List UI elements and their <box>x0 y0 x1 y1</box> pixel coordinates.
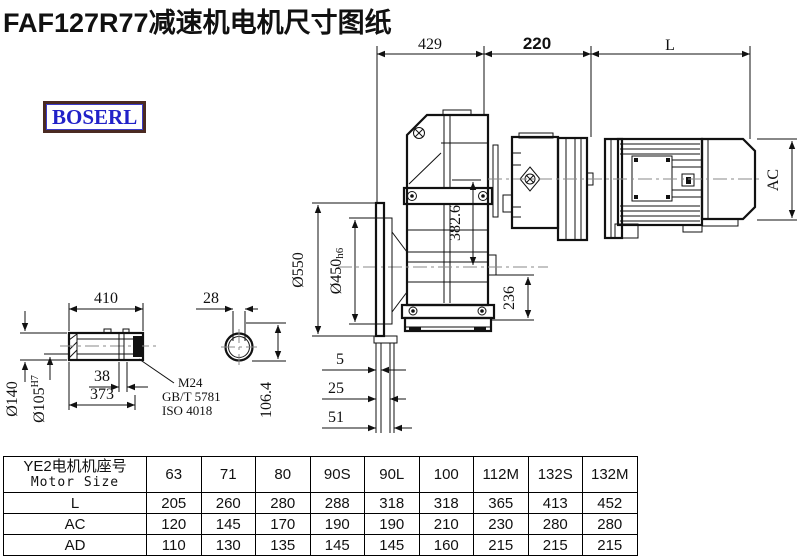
cell: 413 <box>528 493 583 514</box>
motor-size-label-en: Motor Size <box>4 475 146 491</box>
cell: 365 <box>474 493 529 514</box>
housing-dimensions: 382.6 236 <box>447 180 534 320</box>
col-header: 112M <box>474 457 529 493</box>
dim-38: 38 <box>94 368 110 385</box>
cell: 230 <box>474 514 529 535</box>
cell: 215 <box>583 535 638 556</box>
motor-adapter <box>493 133 593 240</box>
dim-51: 51 <box>328 409 344 426</box>
label-standard-iso: ISO 4018 <box>162 403 212 418</box>
dim-5: 5 <box>336 351 344 368</box>
motor <box>488 139 762 238</box>
label-standard-gb: GB/T 5781 <box>162 389 221 404</box>
col-header: 71 <box>201 457 256 493</box>
row-label: AC <box>4 514 147 535</box>
cell: 318 <box>365 493 420 514</box>
table-row-AD: AD 110 130 135 145 145 160 215 215 215 <box>4 535 638 556</box>
dim-28: 28 <box>203 290 219 307</box>
table-header-row: YE2电机机座号 Motor Size 63 71 80 90S 90L 100… <box>4 457 638 493</box>
cell: 145 <box>310 535 365 556</box>
dim-410: 410 <box>94 290 118 307</box>
dim-429: 429 <box>418 36 442 53</box>
cell: 280 <box>583 514 638 535</box>
cell: 130 <box>201 535 256 556</box>
cell: 120 <box>147 514 202 535</box>
cell: 215 <box>474 535 529 556</box>
motor-size-table: YE2电机机座号 Motor Size 63 71 80 90S 90L 100… <box>3 456 638 556</box>
hollow-shaft-detail: 410 Ø140 Ø105H7 38 373 M24 GB/T 5781 <box>4 290 221 423</box>
cell: 205 <box>147 493 202 514</box>
dim-L: L <box>665 37 675 54</box>
col-header: 90S <box>310 457 365 493</box>
col-header: 80 <box>256 457 311 493</box>
cell: 210 <box>419 514 474 535</box>
motor-size-label-cn: YE2电机机座号 <box>4 458 146 475</box>
cell: 280 <box>528 514 583 535</box>
row-label: AD <box>4 535 147 556</box>
cell: 318 <box>419 493 474 514</box>
cell: 160 <box>419 535 474 556</box>
cell: 288 <box>310 493 365 514</box>
cell: 170 <box>256 514 311 535</box>
dim-106: 106.4 <box>258 382 275 418</box>
cell: 145 <box>201 514 256 535</box>
flange-dimensions: Ø550 Ø450h6 <box>290 203 384 336</box>
dim-373: 373 <box>90 386 114 403</box>
dim-550: Ø550 <box>290 252 307 288</box>
row-label: L <box>4 493 147 514</box>
cell: 280 <box>256 493 311 514</box>
col-header: 90L <box>365 457 420 493</box>
col-header: 132S <box>528 457 583 493</box>
cell: 145 <box>365 535 420 556</box>
cell: 190 <box>365 514 420 535</box>
dim-140: Ø140 <box>4 381 21 417</box>
motor-height-dimension: AC <box>757 139 797 220</box>
dim-AC: AC <box>765 169 782 191</box>
col-header: 63 <box>147 457 202 493</box>
table-row-L: L 205 260 280 288 318 318 365 413 452 <box>4 493 638 514</box>
dim-25: 25 <box>328 380 344 397</box>
cell: 452 <box>583 493 638 514</box>
cell: 135 <box>256 535 311 556</box>
col-header: 132M <box>583 457 638 493</box>
dim-220: 220 <box>523 34 551 53</box>
cell: 190 <box>310 514 365 535</box>
cell: 215 <box>528 535 583 556</box>
dim-105: Ø105H7 <box>30 375 48 423</box>
table-row-AC: AC 120 145 170 190 190 210 230 280 280 <box>4 514 638 535</box>
cell: 110 <box>147 535 202 556</box>
dim-450: Ø450h6 <box>328 247 346 294</box>
dim-236: 236 <box>501 286 518 310</box>
table-header-motor-size: YE2电机机座号 Motor Size <box>4 457 147 493</box>
label-thread: M24 <box>178 375 203 390</box>
cell: 260 <box>201 493 256 514</box>
dim-382: 382.6 <box>447 205 464 241</box>
face-offset-dimensions: 5 25 51 <box>322 351 412 428</box>
col-header: 100 <box>419 457 474 493</box>
